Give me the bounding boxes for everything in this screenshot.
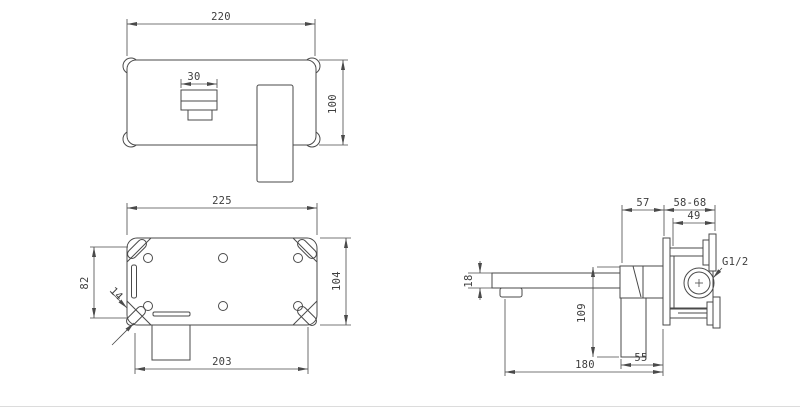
- dim-label: 220: [211, 11, 231, 23]
- dim-side-handle-to-wall: 57: [622, 197, 664, 263]
- dim-back-height: 104: [320, 238, 351, 325]
- inlet-neck-bottom: [707, 302, 713, 325]
- aerator-side: [500, 288, 522, 297]
- inlet-pipe-top: [670, 248, 703, 256]
- dim-back-slot-spacing: 82: [79, 247, 128, 318]
- drawing-canvas: 220 30 100: [0, 0, 800, 410]
- inlet-flange-bottom: [713, 297, 720, 328]
- dim-label: 180: [575, 359, 595, 371]
- front-view: 220 30 100: [123, 11, 348, 182]
- side-view: 57 58-68 49 G1/2 18 109: [463, 197, 749, 376]
- thread-label: G1/2: [722, 256, 749, 268]
- handle-base: [620, 266, 663, 298]
- dim-label: 203: [212, 356, 232, 368]
- dim-front-height: 100: [319, 60, 348, 145]
- dimension-line: [112, 323, 134, 345]
- dim-label: 30: [187, 71, 200, 83]
- dim-front-width: 220: [127, 11, 315, 56]
- dim-label: 14: [107, 285, 125, 303]
- dim-label: 100: [327, 94, 339, 114]
- dim-side-spout-height: 18: [463, 261, 492, 300]
- dim-label: 49: [687, 210, 700, 222]
- back-view: 225 82 104 203 14: [79, 195, 351, 374]
- inlet-neck-top: [703, 240, 709, 265]
- page-bottom-divider: [0, 406, 800, 407]
- dim-label: 104: [331, 271, 343, 291]
- spout-side: [492, 273, 621, 288]
- dim-label: 225: [212, 195, 232, 207]
- dim-back-width: 225: [127, 195, 317, 235]
- dim-label: 18: [463, 274, 475, 287]
- wall-plate: [663, 238, 670, 325]
- dim-label: 109: [576, 303, 588, 323]
- dim-label: 58-68: [673, 197, 706, 209]
- dim-label: 82: [79, 276, 91, 289]
- technical-drawing: 220 30 100: [0, 0, 800, 410]
- handle-grip: [621, 298, 646, 357]
- spout-stub: [152, 325, 190, 360]
- dim-label: 55: [634, 352, 647, 364]
- inlet-flange-top: [709, 234, 716, 271]
- thread-callout: G1/2: [713, 256, 749, 278]
- handle-front: [257, 85, 293, 182]
- dim-label: 57: [636, 197, 649, 209]
